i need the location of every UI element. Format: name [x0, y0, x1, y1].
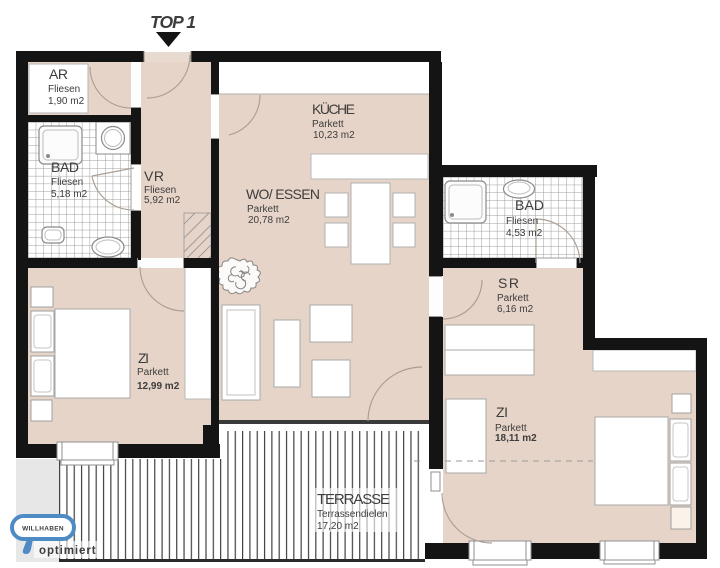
svg-text:20,78 m2: 20,78 m2 [248, 215, 290, 226]
svg-text:Fliesen: Fliesen [506, 216, 538, 227]
svg-text:4,53 m2: 4,53 m2 [506, 228, 543, 239]
svg-text:12,99 m2: 12,99 m2 [137, 381, 180, 392]
svg-text:BAD: BAD [515, 197, 544, 213]
svg-text:1,90 m2: 1,90 m2 [48, 96, 85, 107]
svg-text:WO/ ESSEN: WO/ ESSEN [246, 186, 320, 202]
svg-text:18,11 m2: 18,11 m2 [495, 433, 537, 444]
svg-text:5,92 m2: 5,92 m2 [144, 195, 181, 206]
svg-text:AR: AR [49, 66, 68, 82]
svg-text:BAD: BAD [51, 159, 79, 175]
svg-text:Parkett: Parkett [247, 204, 279, 215]
svg-text:Parkett: Parkett [497, 293, 529, 304]
svg-text:Parkett: Parkett [312, 119, 344, 130]
svg-text:ZI: ZI [138, 350, 149, 366]
svg-text:Terrassendielen: Terrassendielen [317, 509, 388, 520]
svg-text:SR: SR [498, 275, 519, 291]
svg-text:Parkett: Parkett [137, 367, 169, 378]
svg-text:KÜCHE: KÜCHE [312, 100, 355, 117]
svg-text:17,20 m2: 17,20 m2 [317, 521, 359, 532]
svg-text:Fliesen: Fliesen [48, 84, 80, 95]
svg-text:WILLHABEN: WILLHABEN [22, 526, 64, 533]
svg-text:6,16 m2: 6,16 m2 [497, 304, 534, 315]
svg-text:VR: VR [144, 168, 164, 184]
svg-text:ZI: ZI [496, 404, 508, 420]
svg-text:Fliesen: Fliesen [51, 177, 83, 188]
svg-text:10,23 m2: 10,23 m2 [313, 130, 355, 141]
svg-text:TERRASSE: TERRASSE [317, 491, 390, 508]
svg-text:5,18 m2: 5,18 m2 [51, 189, 88, 200]
svg-text:optimiert: optimiert [39, 545, 96, 557]
svg-text:TOP 1: TOP 1 [150, 12, 196, 32]
